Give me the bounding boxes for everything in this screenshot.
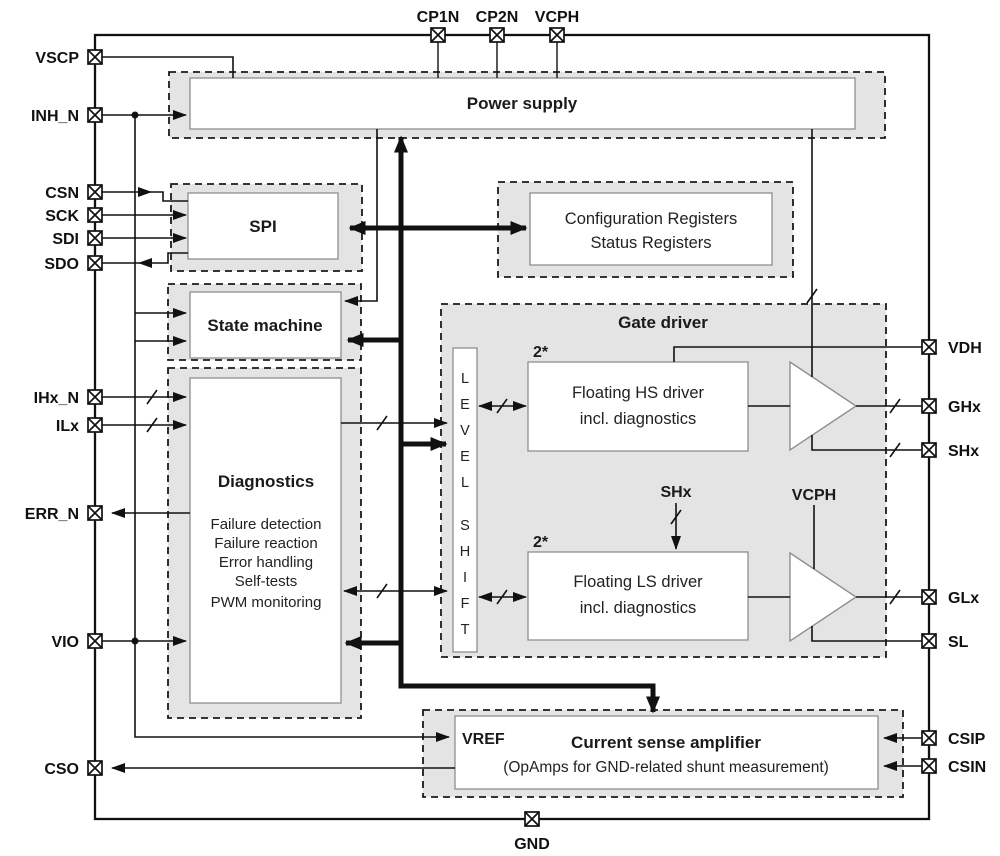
pin-ihxn: IHx_N bbox=[34, 390, 102, 407]
registers-box bbox=[530, 193, 772, 265]
level-shift-letter: L bbox=[461, 475, 469, 491]
pin-label: CSIP bbox=[948, 731, 986, 748]
diagnostics-item: PWM monitoring bbox=[211, 594, 322, 611]
diagnostics-item: Error handling bbox=[219, 554, 313, 571]
vcph-net-label: VCPH bbox=[792, 487, 836, 504]
level-shift-letter: I bbox=[463, 570, 467, 586]
level-shift-letter: L bbox=[461, 371, 469, 387]
pin-label: INH_N bbox=[31, 108, 79, 125]
pin-label: VIO bbox=[51, 634, 79, 651]
pin-label: VDH bbox=[948, 340, 982, 357]
pin-label: VCPH bbox=[535, 9, 579, 26]
pin-label: CSO bbox=[44, 761, 79, 778]
state-machine-title: State machine bbox=[207, 316, 322, 335]
registers-line1: Configuration Registers bbox=[565, 210, 737, 228]
current-sense-amp-box bbox=[455, 716, 878, 789]
hs-driver-box bbox=[528, 362, 748, 451]
pin-label: GLx bbox=[948, 590, 979, 607]
pin-label: SHx bbox=[948, 443, 979, 460]
pin-vio: VIO bbox=[51, 634, 102, 651]
pin-label: SL bbox=[948, 634, 969, 651]
registers-line2: Status Registers bbox=[590, 234, 711, 252]
pin-cso: CSO bbox=[44, 761, 102, 778]
csa-title: Current sense amplifier bbox=[571, 733, 761, 752]
pin-vdh: VDH bbox=[922, 340, 982, 357]
pin-csin: CSIN bbox=[922, 759, 986, 776]
ls-driver-line2: incl. diagnostics bbox=[580, 599, 696, 617]
diagnostics-title: Diagnostics bbox=[218, 472, 314, 491]
level-shift-letter: E bbox=[460, 397, 470, 413]
level-shift-letter: H bbox=[460, 544, 470, 560]
pin-vcph: VCPH bbox=[535, 9, 579, 42]
pin-label: ERR_N bbox=[25, 506, 79, 523]
junction-dot-inhn bbox=[132, 112, 139, 119]
pin-label: SDO bbox=[44, 256, 79, 273]
pin-sck: SCK bbox=[45, 208, 102, 225]
hs-driver-line1: Floating HS driver bbox=[572, 384, 705, 402]
pin-ilx: ILx bbox=[56, 418, 102, 435]
level-shift-letter: E bbox=[460, 449, 470, 465]
pin-sl: SL bbox=[922, 634, 969, 651]
pin-cp2n: CP2N bbox=[476, 9, 519, 42]
csa-subtitle: (OpAmps for GND-related shunt measuremen… bbox=[503, 759, 829, 776]
pin-label: CSN bbox=[45, 185, 79, 202]
pin-shx: SHx bbox=[922, 443, 979, 460]
ls-count-label: 2* bbox=[533, 534, 549, 551]
level-shift-letter: F bbox=[461, 596, 470, 612]
diagnostics-item: Failure detection bbox=[211, 516, 322, 533]
pin-label: SDI bbox=[52, 231, 79, 248]
pin-label: CP2N bbox=[476, 9, 519, 26]
level-shift-letter: T bbox=[461, 622, 470, 638]
block-diagram-page: CP1N CP2N VCPH VSCP INH_N CSN SCK SDI SD… bbox=[0, 0, 1000, 856]
pin-label: VSCP bbox=[35, 50, 79, 67]
pin-label: ILx bbox=[56, 418, 79, 435]
pin-errn: ERR_N bbox=[25, 506, 102, 523]
pin-label: CSIN bbox=[948, 759, 986, 776]
diagnostics-item: Failure reaction bbox=[214, 535, 317, 552]
pin-ghx: GHx bbox=[922, 399, 981, 416]
level-shift-letter: V bbox=[460, 423, 470, 439]
hs-driver-line2: incl. diagnostics bbox=[580, 410, 696, 428]
pin-glx: GLx bbox=[922, 590, 979, 607]
pin-csip: CSIP bbox=[922, 731, 986, 748]
diagnostics-item: Self-tests bbox=[235, 573, 298, 590]
pin-label: GHx bbox=[948, 399, 981, 416]
pin-label: IHx_N bbox=[34, 390, 79, 407]
pin-inhn: INH_N bbox=[31, 108, 102, 125]
pin-label: SCK bbox=[45, 208, 79, 225]
vref-label: VREF bbox=[462, 731, 505, 748]
pin-sdo: SDO bbox=[44, 256, 102, 273]
ls-driver-box bbox=[528, 552, 748, 640]
pin-label: CP1N bbox=[417, 9, 460, 26]
pin-vscp: VSCP bbox=[35, 50, 102, 67]
hs-count-label: 2* bbox=[533, 344, 549, 361]
ic-block-diagram: CP1N CP2N VCPH VSCP INH_N CSN SCK SDI SD… bbox=[0, 0, 1000, 856]
pin-sdi: SDI bbox=[52, 231, 102, 248]
pin-cp1n: CP1N bbox=[417, 9, 460, 42]
power-supply-title: Power supply bbox=[467, 94, 578, 113]
pin-csn: CSN bbox=[45, 185, 102, 202]
pin-label: GND bbox=[514, 836, 550, 853]
csn-arrowhead bbox=[138, 187, 152, 197]
ls-driver-line1: Floating LS driver bbox=[573, 573, 703, 591]
level-shift-letter: S bbox=[460, 518, 470, 534]
sdo-arrowhead bbox=[138, 258, 152, 268]
spi-title: SPI bbox=[249, 217, 276, 236]
shx-net-label: SHx bbox=[660, 484, 691, 501]
gate-driver-title: Gate driver bbox=[618, 313, 708, 332]
